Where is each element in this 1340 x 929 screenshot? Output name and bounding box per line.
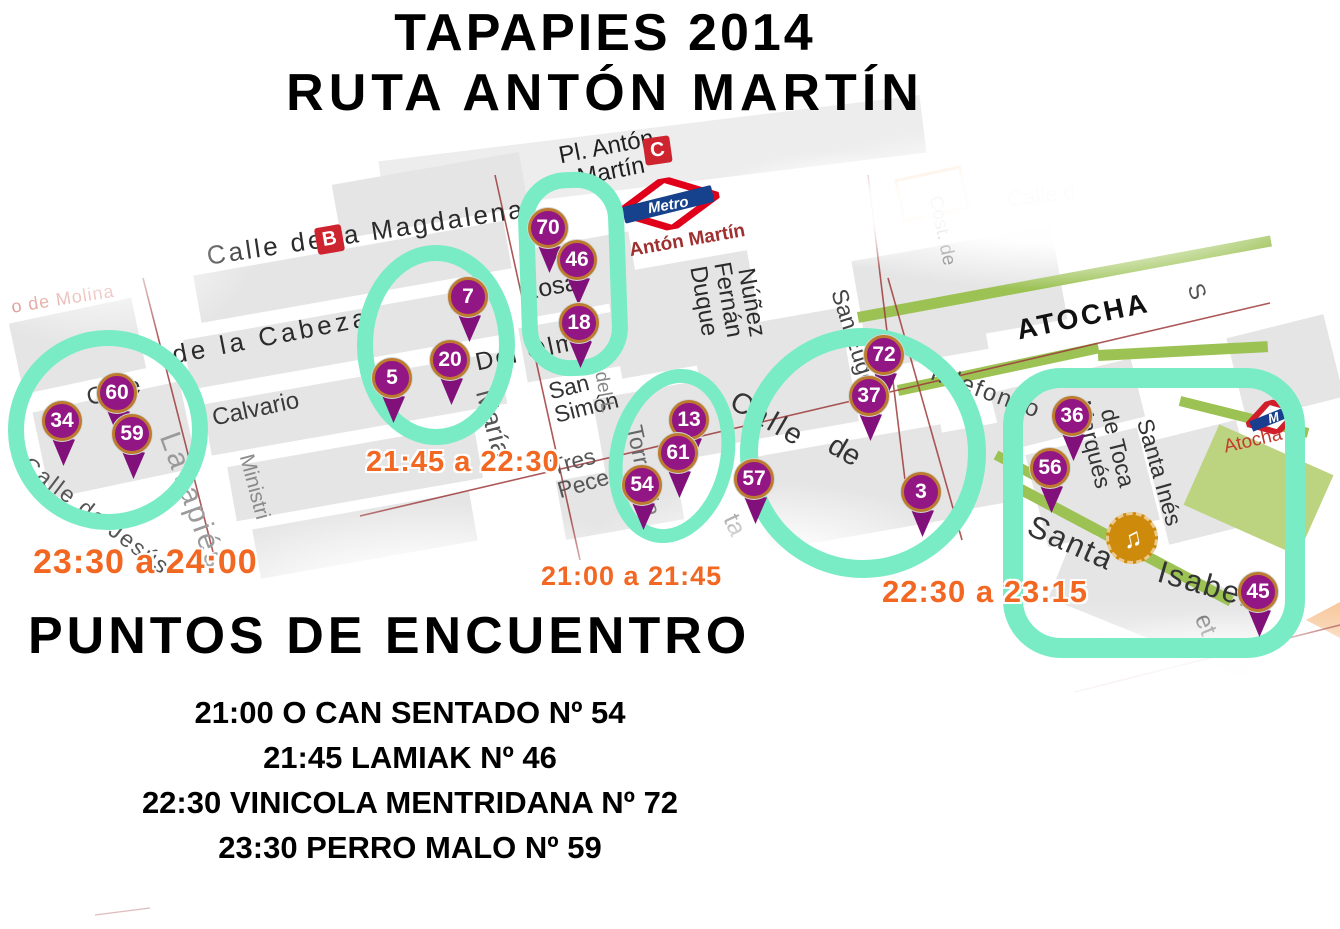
meeting-item: 23:30 PERRO MALO Nº 59 — [55, 825, 765, 870]
meeting-item: 21:00 O CAN SENTADO Nº 54 — [55, 690, 765, 735]
pin-number: 60 — [105, 381, 128, 405]
time-label-2230: 22:30 a 23:15 — [882, 574, 1088, 610]
meeting-item: 22:30 VINICOLA MENTRIDANA Nº 72 — [55, 780, 765, 825]
highlight-group-2230-circle — [740, 328, 986, 578]
meeting-points-list: 21:00 O CAN SENTADO Nº 54 21:45 LAMIAK N… — [55, 690, 765, 870]
pin-number: 54 — [630, 473, 653, 497]
map-pin-3[interactable]: 3 — [901, 472, 941, 542]
map-pin-18[interactable]: 18 — [559, 303, 599, 373]
map-pin-54[interactable]: 54 — [622, 465, 662, 535]
map-pin-34[interactable]: 34 — [42, 401, 82, 471]
map-pin-57[interactable]: 57 — [734, 459, 774, 529]
pin-number: 3 — [915, 480, 927, 504]
pin-number: 57 — [742, 467, 765, 491]
meeting-item: 21:45 LAMIAK Nº 46 — [55, 735, 765, 780]
map-pin-5[interactable]: 5 — [372, 358, 412, 428]
poster-title-line2: RUTA ANTÓN MARTÍN — [250, 64, 960, 122]
time-label-2145: 21:45 a 22:30 — [366, 446, 560, 479]
map-pin-37[interactable]: 37 — [849, 376, 889, 446]
map-pin-56[interactable]: 56 — [1030, 448, 1070, 518]
poster: Pl. Antón Martín Calle de la Magdalena d… — [0, 0, 1340, 929]
time-label-2100: 21:00 a 21:45 — [541, 561, 722, 592]
map-pin-46[interactable]: 46 — [557, 240, 597, 310]
poster-title-line1: TAPAPIES 2014 — [250, 2, 960, 64]
pin-number: 13 — [677, 408, 700, 432]
pin-number: 20 — [438, 348, 461, 372]
pin-number: 46 — [565, 248, 588, 272]
poster-title: TAPAPIES 2014 RUTA ANTÓN MARTÍN — [250, 2, 960, 122]
pin-number: 34 — [50, 409, 73, 433]
cercanias-badge: C — [642, 135, 672, 165]
pin-number: 59 — [120, 422, 143, 446]
bus-badge-letter: B — [320, 227, 338, 252]
map-pin-7[interactable]: 7 — [448, 277, 488, 347]
pin-number: 56 — [1038, 456, 1061, 480]
time-label-2330: 23:30 a 24:00 — [33, 543, 258, 582]
bus-stop-badge: B — [314, 224, 345, 255]
pin-number: 5 — [386, 366, 398, 390]
pin-number: 72 — [872, 343, 895, 367]
map-pin-20[interactable]: 20 — [430, 340, 470, 410]
meeting-points-heading: PUNTOS DE ENCUENTRO — [28, 606, 750, 666]
pin-number: 45 — [1246, 580, 1269, 604]
cercanias-badge-letter: C — [649, 138, 667, 163]
map-pin-45[interactable]: 45 — [1238, 572, 1278, 642]
pin-number: 61 — [666, 441, 689, 465]
pin-number: 36 — [1060, 404, 1083, 428]
map-pin-61[interactable]: 61 — [658, 433, 698, 503]
pin-number: 18 — [567, 311, 590, 335]
pin-number: 37 — [857, 384, 880, 408]
map-pin-59[interactable]: 59 — [112, 414, 152, 484]
pin-number: 70 — [536, 216, 559, 240]
pin-number: 7 — [462, 285, 474, 309]
